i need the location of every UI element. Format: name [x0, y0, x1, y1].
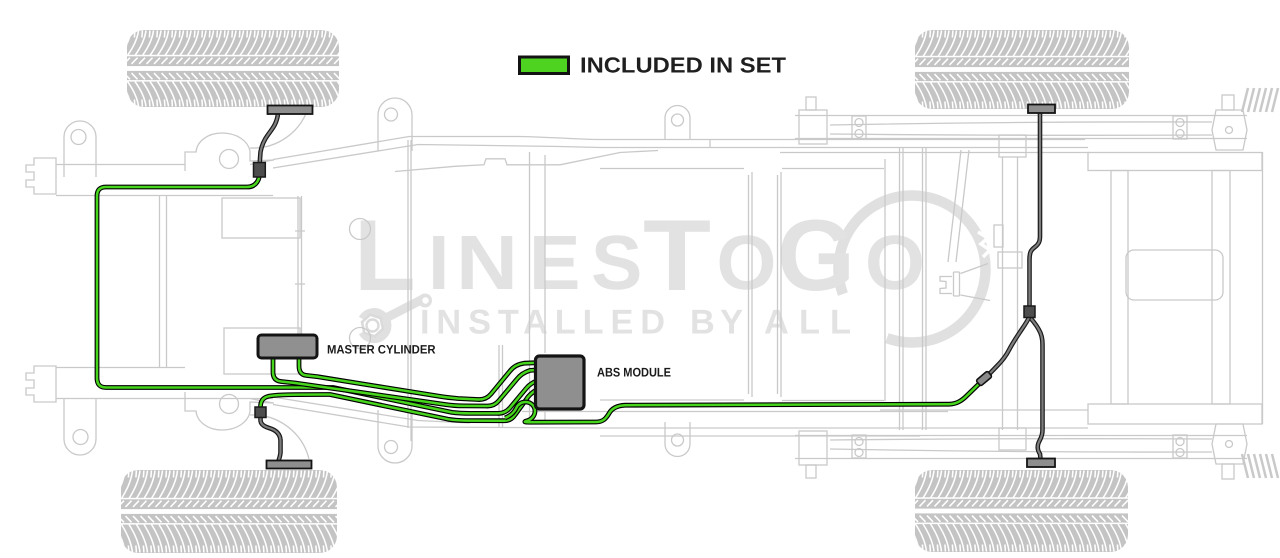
svg-text:I: I	[428, 220, 449, 306]
svg-text:N: N	[456, 220, 518, 306]
svg-text:INSTALLED: INSTALLED	[420, 304, 665, 342]
svg-text:S: S	[591, 220, 642, 306]
svg-text:G: G	[777, 200, 855, 312]
svg-text:T: T	[643, 200, 711, 312]
svg-text:O: O	[865, 220, 925, 306]
svg-text:E: E	[529, 220, 580, 306]
svg-text:MASTER CYLINDER: MASTER CYLINDER	[327, 343, 436, 357]
svg-text:INCLUDED IN SET: INCLUDED IN SET	[580, 53, 787, 78]
svg-text:L: L	[354, 200, 416, 312]
svg-text:O: O	[717, 220, 777, 306]
svg-text:ABS MODULE: ABS MODULE	[597, 365, 671, 379]
